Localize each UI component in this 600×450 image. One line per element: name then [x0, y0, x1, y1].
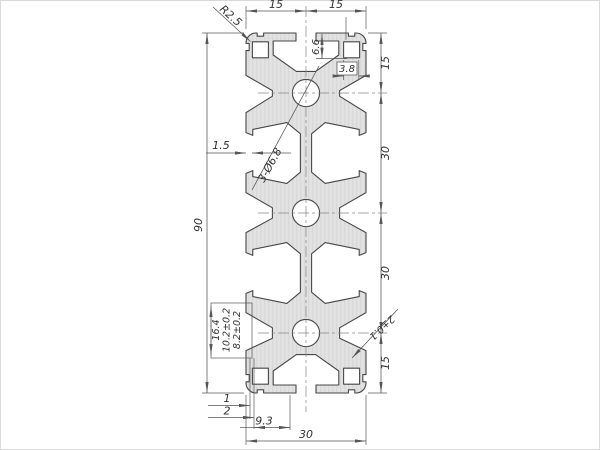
cad-drawing-page: 15 15 15 30 30 15 90 1.5 R2.5 3-Ø6.8 6.6…	[0, 0, 600, 450]
label-top-left-15: 15	[269, 0, 283, 11]
label-right-30a: 30	[379, 146, 392, 160]
label-slot-depth-6-6: 6.6	[311, 39, 322, 55]
label-holes-callout: 3-Ø6.8	[255, 146, 284, 185]
label-wall-1-5: 1.5	[212, 139, 230, 152]
label-width-30: 30	[299, 428, 313, 441]
label-slot-inner-width: 16.4	[211, 319, 222, 340]
label-slot-opening: 8.2±0.2	[232, 311, 243, 349]
label-chamber-width-3-8: 3.8	[339, 64, 355, 75]
label-lip-tolerance: 2±0.1	[367, 313, 397, 342]
cad-drawing: 15 15 15 30 30 15 90 1.5 R2.5 3-Ø6.8 6.6…	[0, 0, 600, 450]
label-right-15b: 15	[379, 356, 392, 370]
label-lip-1: 1	[224, 392, 231, 405]
label-height-90: 90	[192, 218, 205, 232]
label-corner-radius: R2.5	[217, 3, 244, 29]
label-slot-mid-width: 10.2±0.2	[222, 308, 233, 352]
label-top-right-15: 15	[329, 0, 343, 11]
label-slot-offset-9-3: 9.3	[255, 415, 273, 428]
label-lip-2: 2	[224, 405, 231, 418]
label-right-30b: 30	[379, 266, 392, 280]
label-right-15a: 15	[379, 56, 392, 70]
